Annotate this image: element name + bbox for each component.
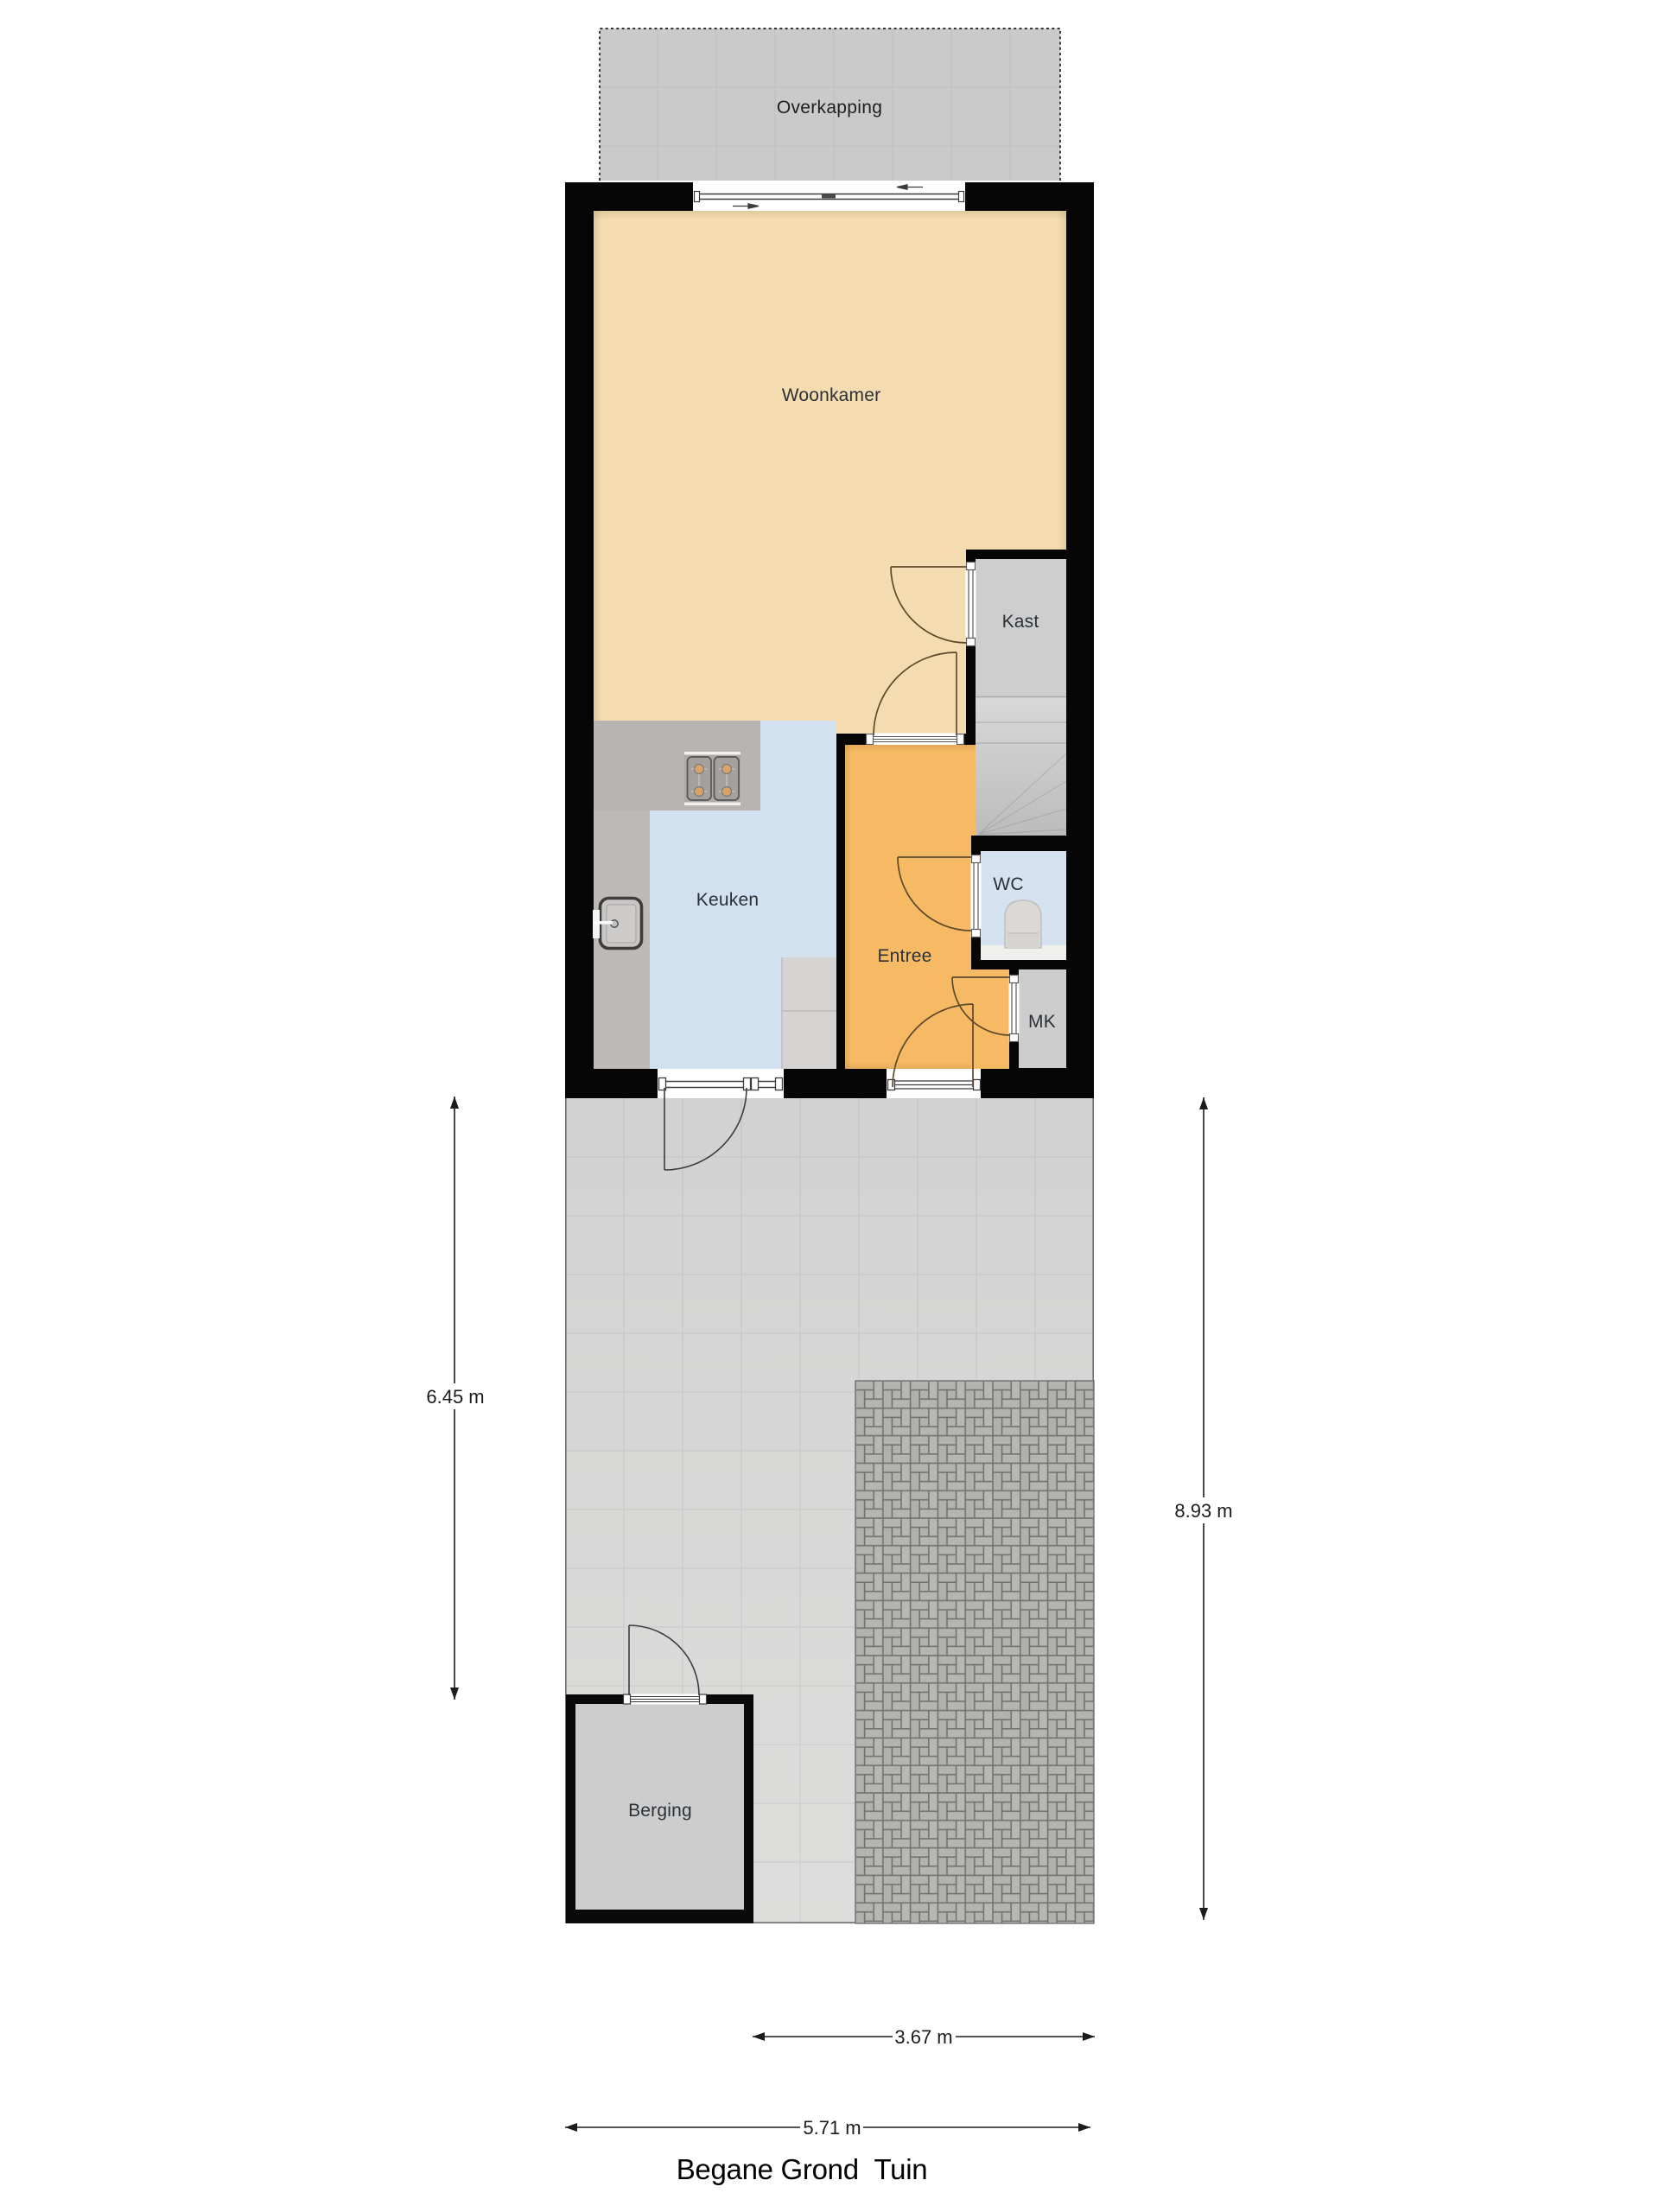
svg-text:Entree: Entree bbox=[877, 946, 931, 966]
svg-text:3.67 m: 3.67 m bbox=[894, 2026, 952, 2048]
svg-text:6.45 m: 6.45 m bbox=[426, 1386, 484, 1408]
svg-text:Berging: Berging bbox=[628, 1801, 692, 1821]
svg-text:Kast: Kast bbox=[1002, 612, 1039, 632]
svg-text:WC: WC bbox=[993, 874, 1023, 894]
svg-text:Woonkamer: Woonkamer bbox=[782, 385, 881, 405]
svg-text:8.93 m: 8.93 m bbox=[1174, 1500, 1232, 1522]
svg-text:Keuken: Keuken bbox=[696, 890, 759, 910]
svg-text:Overkapping: Overkapping bbox=[777, 98, 882, 118]
svg-text:Begane Grond Tuin: Begane Grond Tuin bbox=[677, 2153, 928, 2185]
svg-text:MK: MK bbox=[1028, 1012, 1056, 1032]
svg-text:5.71 m: 5.71 m bbox=[803, 2117, 861, 2139]
